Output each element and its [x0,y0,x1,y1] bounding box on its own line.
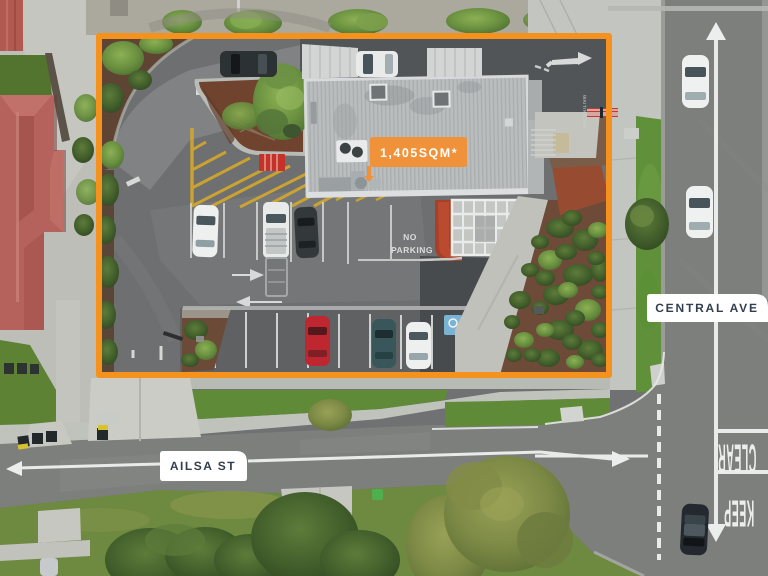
svg-text:NO: NO [403,232,417,242]
svg-text:PARKING: PARKING [391,245,433,255]
svg-text:1,405SQM*: 1,405SQM* [380,146,458,160]
svg-text:WAITING BAY: WAITING BAY [582,95,587,130]
svg-text:KEEP: KEEP [724,490,755,533]
svg-text:CLEAR: CLEAR [718,433,757,481]
svg-text:CENTRAL AVE: CENTRAL AVE [655,301,759,315]
svg-text:AILSA ST: AILSA ST [170,459,236,473]
